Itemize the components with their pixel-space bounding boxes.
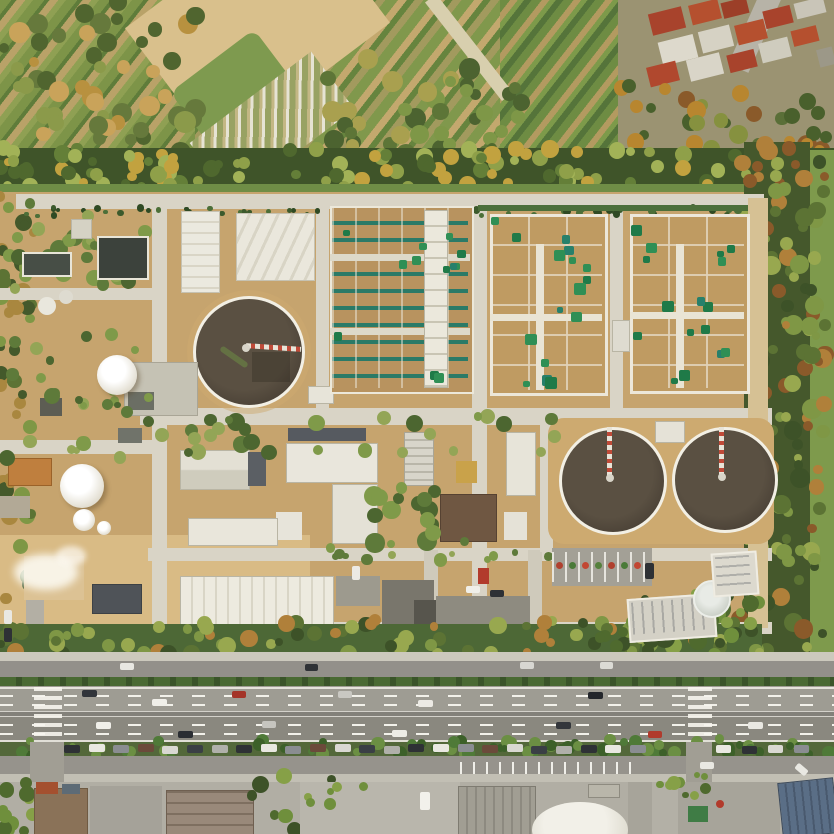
basin-east-green-patches <box>721 348 730 357</box>
car <box>4 610 12 624</box>
plant-hedge-row <box>103 210 107 214</box>
corner-grove-nw <box>52 28 67 43</box>
satellite-dish <box>38 297 56 315</box>
aeration-gallery <box>424 210 448 388</box>
parked-car-row <box>187 745 203 753</box>
hut-orange <box>8 458 52 486</box>
hw-sidewalk-north <box>0 652 834 661</box>
parked-car-row <box>212 745 228 753</box>
basin-east-green-patches <box>631 225 642 236</box>
car <box>490 590 504 597</box>
central-grove <box>367 508 382 523</box>
bldg-yellow <box>456 461 477 483</box>
car <box>4 628 12 642</box>
shelterbelt-canopy <box>380 149 392 161</box>
plant-hedge-row <box>613 210 621 218</box>
road-lower <box>148 548 772 561</box>
left-tanks-trees <box>6 368 18 380</box>
red-container <box>478 568 489 584</box>
west-edge-grove <box>13 539 28 554</box>
parked-car-row <box>507 744 523 752</box>
shelterbelt-canopy <box>443 149 459 165</box>
south-greenbelt-canopy <box>153 621 165 633</box>
road-v-centerleft <box>316 198 329 416</box>
parked-car-row <box>408 744 424 752</box>
basin-west-walkway-h <box>490 314 602 321</box>
farm-grove-center <box>432 103 448 119</box>
farm-grove-center <box>391 126 409 144</box>
aeration-green-bits <box>457 250 466 259</box>
parked-car-row <box>236 745 252 753</box>
hut-gray <box>0 496 30 518</box>
village-grove <box>689 115 705 131</box>
midband-trees <box>188 432 201 445</box>
village-grove <box>732 85 749 102</box>
east-grove-canopy <box>792 439 803 450</box>
basin-west-green-patches <box>571 312 582 323</box>
bottom-trees-right <box>667 776 681 790</box>
midband-trees <box>212 422 225 435</box>
parked-car-row <box>89 744 105 752</box>
shelterbelt-canopy <box>283 143 297 157</box>
shelterbelt-canopy <box>609 142 626 159</box>
bldg-dark-nw-west <box>22 252 72 277</box>
village-house <box>816 46 834 67</box>
aeration-green-bits <box>412 256 421 265</box>
farm-grove-center <box>358 49 378 69</box>
plant-hedge-row <box>156 207 161 212</box>
midband-trees-2 <box>434 553 447 566</box>
bottom-trees-right <box>682 792 688 798</box>
se-shrubs <box>582 562 589 569</box>
bldg-brown <box>440 494 497 542</box>
village-grove <box>714 113 728 127</box>
midband-trees <box>496 416 511 431</box>
nw-block-grove <box>10 283 20 293</box>
aeration-green-bits <box>419 243 427 251</box>
basin-east-grid <box>630 214 744 388</box>
midband-trees <box>155 428 169 442</box>
parked-car-row <box>162 746 178 754</box>
plant-hedge-row <box>137 204 145 212</box>
clarifier-2 <box>559 427 667 535</box>
shelterbelt-canopy <box>438 171 452 185</box>
parked-car-row <box>359 745 375 753</box>
east-grove-canopy <box>808 553 821 566</box>
shelterbelt-canopy <box>510 156 519 165</box>
shelterbelt-canopy <box>487 169 497 179</box>
left-tanks-trees <box>144 393 153 402</box>
east-grove-canopy <box>771 157 783 169</box>
se-shrubs <box>634 562 641 569</box>
clarifier-2-bridge <box>607 427 612 478</box>
bottom-trees-mid <box>278 809 292 823</box>
left-tanks-trees <box>76 436 90 450</box>
east-grove-canopy <box>813 155 826 168</box>
car <box>352 566 360 580</box>
west-edge-grove <box>18 390 27 399</box>
midband-trees-2 <box>460 537 469 546</box>
midband-trees <box>548 430 561 443</box>
clarifier-3 <box>672 427 778 533</box>
car <box>648 731 662 738</box>
basin-east-green-patches <box>697 297 706 306</box>
basin-west-green-patches <box>523 381 529 387</box>
intersection-left <box>30 742 64 782</box>
nw-block-grove <box>12 232 23 243</box>
bottom-lot-trees <box>324 798 336 810</box>
central-grove <box>396 482 408 494</box>
clarifier-3-hub <box>718 473 726 481</box>
shelterbelt-canopy <box>21 162 32 173</box>
clarifier-1-hub <box>242 344 250 352</box>
parked-car-row <box>285 746 301 754</box>
midband-trees-2 <box>449 551 455 557</box>
corner-grove-nw <box>49 81 70 102</box>
basin-west-green-patches <box>525 334 537 346</box>
corner-grove-nw <box>9 22 29 42</box>
bldg-dark-nw-main <box>97 236 149 280</box>
south-greenbelt-canopy <box>489 617 506 634</box>
aeration-green-bits <box>446 233 453 240</box>
corner-grove-nw <box>11 62 25 76</box>
bottom-trees-right <box>656 781 664 789</box>
bldg-dark-south <box>92 584 142 614</box>
shelterbelt-canopy <box>423 160 436 173</box>
east-grove-canopy <box>819 319 831 331</box>
east-grove-canopy <box>795 170 812 187</box>
nw-block-grove <box>32 222 45 235</box>
se-shrubs <box>608 562 615 569</box>
south-greenbelt-canopy <box>13 623 29 639</box>
basin-west-green-patches <box>557 307 563 313</box>
corner-grove-nw <box>97 33 116 52</box>
midband-trees <box>449 446 458 455</box>
parked-car-row <box>768 745 783 753</box>
central-grove <box>417 492 431 506</box>
zebra-crossing-right <box>688 687 712 740</box>
farm-grove-center <box>320 71 336 87</box>
dome-tank-small <box>73 509 95 531</box>
south-greenbelt-canopy <box>121 638 135 652</box>
village-grove <box>784 108 800 124</box>
parked-car-row <box>482 745 498 753</box>
basin-west-green-patches <box>491 217 499 225</box>
car <box>748 722 763 729</box>
satellite-dish <box>59 290 73 304</box>
basin-west-green-patches <box>564 246 574 256</box>
left-tanks-trees <box>105 328 118 341</box>
east-grove-canopy <box>776 544 792 560</box>
dome-tank <box>97 355 137 395</box>
parked-car-row <box>261 744 277 752</box>
car <box>520 662 534 669</box>
zebra-crossing-left <box>34 687 62 740</box>
farm-grove-east <box>511 110 525 124</box>
village-grove <box>646 103 656 113</box>
se-shrubs <box>621 562 628 569</box>
east-grove-canopy <box>752 161 763 172</box>
east-grove-canopy <box>817 185 830 198</box>
roof-blue-bottom <box>62 784 80 794</box>
shelterbelt-canopy <box>543 169 556 182</box>
south-greenbelt-canopy <box>425 639 437 651</box>
east-grove-canopy <box>794 619 814 639</box>
basin-west-green-patches <box>583 264 592 273</box>
corner-grove-nw <box>174 111 196 133</box>
plant-hedge-row <box>35 214 40 219</box>
parked-car-row <box>458 744 474 752</box>
midband-trees <box>474 412 482 420</box>
basin-west-green-patches <box>574 283 586 295</box>
car <box>645 563 654 579</box>
east-grove-canopy <box>780 237 793 250</box>
shelterbelt-canopy <box>651 160 664 173</box>
shelterbelt-canopy <box>8 155 19 166</box>
clarifier-2-hub <box>606 474 614 482</box>
basin-west-green-patches <box>541 359 549 367</box>
steam-plume <box>56 546 86 566</box>
car <box>96 722 111 729</box>
hw-south-median-trees <box>715 734 724 743</box>
roof-red-bottom <box>36 782 58 794</box>
south-greenbelt-canopy <box>275 638 283 646</box>
south-greenbelt-canopy <box>570 629 583 642</box>
east-grove-canopy <box>790 255 809 274</box>
corner-grove-nw <box>158 89 172 103</box>
bottom-lot-trees <box>332 782 342 792</box>
south-greenbelt-canopy <box>307 626 322 641</box>
car <box>556 722 571 729</box>
van-white <box>420 792 430 810</box>
east-grove-canopy <box>782 141 797 156</box>
central-grove <box>420 512 436 528</box>
south-greenbelt-canopy <box>715 638 725 648</box>
office-ne-grid <box>715 555 751 589</box>
bottom-trees-mid <box>247 790 258 801</box>
shelterbelt-canopy <box>124 150 135 161</box>
aeration-green-bits <box>450 263 457 270</box>
bottom-trees-left <box>0 821 12 834</box>
parked-car-row <box>433 744 449 752</box>
south-greenbelt-canopy <box>345 620 360 635</box>
car <box>152 699 167 706</box>
parked-car-row <box>384 746 400 754</box>
bottom-lot-center <box>300 782 460 834</box>
parked-car-row <box>605 745 621 753</box>
bottom-trees-left <box>19 786 35 802</box>
village-grove <box>799 93 816 110</box>
parked-car-row <box>113 745 129 753</box>
clarifier-3-bridge <box>719 427 724 477</box>
road-v-left <box>152 198 167 634</box>
east-grove-canopy <box>808 202 825 219</box>
midband-trees-2 <box>334 549 344 559</box>
midband-trees <box>225 416 233 424</box>
aeration-green-bits <box>343 230 349 236</box>
south-greenbelt-canopy <box>522 622 530 630</box>
basin-east-green-patches <box>717 251 723 257</box>
south-greenbelt-canopy <box>291 628 304 641</box>
west-edge-grove <box>23 420 37 434</box>
car <box>232 691 246 698</box>
basin-west-green-patches <box>512 233 520 241</box>
parked-car-row <box>64 745 80 753</box>
farm-grove-center <box>398 103 411 116</box>
se-grove <box>724 628 738 642</box>
midband-trees <box>358 443 372 457</box>
corner-grove-nw <box>75 4 94 23</box>
car <box>262 721 276 728</box>
parked-car-row <box>742 746 757 754</box>
east-grove-canopy <box>782 534 791 543</box>
shelterbelt-canopy <box>711 163 725 177</box>
aeration-green-bits <box>334 332 342 340</box>
farm-grove-east <box>476 105 492 121</box>
road-nw-block <box>0 288 160 300</box>
left-tanks-trees <box>9 336 21 348</box>
aeration-green-bits <box>399 260 408 269</box>
south-greenbelt-canopy <box>102 639 115 652</box>
shelterbelt-canopy <box>380 164 393 177</box>
midband-trees-2 <box>512 549 519 556</box>
left-tanks-trees <box>114 451 126 463</box>
hw-south-median-trees <box>654 740 663 749</box>
east-grove-canopy <box>781 300 793 312</box>
corner-grove-nw <box>148 22 163 37</box>
east-grove-canopy <box>805 284 817 296</box>
farm-grove-center <box>345 127 356 138</box>
shelterbelt-canopy <box>309 142 323 156</box>
shelterbelt-canopy <box>233 159 242 168</box>
left-tanks-trees <box>44 388 60 404</box>
east-grove-canopy <box>790 468 810 488</box>
aeration-walkway <box>330 328 470 335</box>
east-grove-canopy <box>770 170 782 182</box>
shelterbelt-canopy <box>541 140 559 158</box>
basin-west-green-patches <box>554 250 565 261</box>
corner-grove-nw <box>163 52 181 70</box>
village-grove <box>630 100 643 113</box>
bottom-lot-west <box>90 786 162 834</box>
shelterbelt-canopy <box>508 141 523 156</box>
hw-hedge-median <box>0 677 834 686</box>
shelterbelt-canopy <box>90 168 103 181</box>
car <box>588 692 603 699</box>
basin-east-green-patches <box>643 256 650 263</box>
east-grove-canopy <box>759 142 778 161</box>
left-tanks-trees <box>46 356 55 365</box>
bottom-trees-left <box>0 782 14 797</box>
east-grove-canopy <box>809 479 825 495</box>
corner-grove-nw <box>28 14 48 34</box>
nw-block-grove <box>25 198 35 208</box>
shed-dark <box>118 428 142 443</box>
east-grove-canopy <box>818 629 827 638</box>
corner-grove-nw <box>186 7 204 25</box>
pad-building <box>655 421 685 443</box>
parked-car-row <box>556 746 572 754</box>
se-grove <box>610 640 622 652</box>
parked-car-row <box>335 744 351 752</box>
east-grove-canopy <box>816 396 832 412</box>
dome-tank-small <box>97 521 111 535</box>
midband-trees-2 <box>387 540 395 548</box>
south-greenbelt-canopy <box>534 628 549 643</box>
south-greenbelt-canopy <box>199 620 214 635</box>
hw-parking-stalls <box>460 762 635 774</box>
south-greenbelt-canopy <box>71 623 84 636</box>
nw-block-grove <box>81 252 92 263</box>
corner-grove-nw <box>136 36 148 48</box>
corner-grove-nw <box>31 33 48 50</box>
basin-west-green-patches <box>545 377 557 389</box>
east-grove-canopy <box>768 345 777 354</box>
basin-east-walkway-h <box>630 312 744 319</box>
basin-east-green-patches <box>718 257 726 265</box>
shelterbelt-canopy <box>61 166 75 180</box>
car <box>305 664 318 671</box>
utility-boxes <box>588 784 620 798</box>
bldg-solar-row <box>288 428 366 441</box>
shelterbelt-canopy <box>369 150 381 162</box>
hw-south-median-trees <box>153 736 164 747</box>
plant-hedge-row <box>24 212 28 216</box>
south-greenbelt-canopy <box>385 640 397 652</box>
parked-car-row <box>794 745 809 753</box>
car <box>600 662 613 669</box>
car <box>466 586 480 593</box>
basin-east-green-patches <box>679 370 690 381</box>
east-grove-canopy <box>795 545 806 556</box>
car <box>418 700 433 707</box>
corner-grove-nw <box>48 115 64 131</box>
basin-east-green-patches <box>633 332 641 340</box>
red-dot <box>716 800 724 808</box>
basin-east-green-patches <box>671 378 677 384</box>
bldg-tower-frame <box>404 432 434 486</box>
midband-trees <box>243 434 259 450</box>
west-edge-grove <box>9 301 24 316</box>
south-greenbelt-canopy <box>183 624 192 633</box>
bldg-south-gray <box>336 576 380 606</box>
midband-trees <box>377 411 391 425</box>
se-shrubs <box>556 562 563 569</box>
west-edge-grove <box>12 410 21 419</box>
east-grove-canopy <box>784 421 803 440</box>
car <box>700 762 714 769</box>
parked-car-row <box>531 746 547 754</box>
central-grove <box>371 489 388 506</box>
central-grove <box>365 533 384 552</box>
plant-hedge-row <box>315 208 321 214</box>
shelterbelt-canopy <box>291 170 300 179</box>
clarifier-1-shadow <box>252 352 290 382</box>
midband-trees <box>313 445 323 455</box>
corner-grove-nw <box>79 25 95 41</box>
west-edge-grove <box>0 593 12 605</box>
bldg-bottom-grid <box>166 790 254 834</box>
bldg-white-vertical <box>506 432 536 496</box>
basin-east-green-patches <box>662 301 673 312</box>
left-tanks-trees <box>121 406 133 418</box>
corner-grove-nw <box>89 116 108 135</box>
car <box>82 690 97 697</box>
east-grove-canopy <box>805 296 824 315</box>
farm-grove-center <box>459 58 480 79</box>
midband-trees <box>261 445 276 460</box>
se-shrubs <box>569 562 576 569</box>
